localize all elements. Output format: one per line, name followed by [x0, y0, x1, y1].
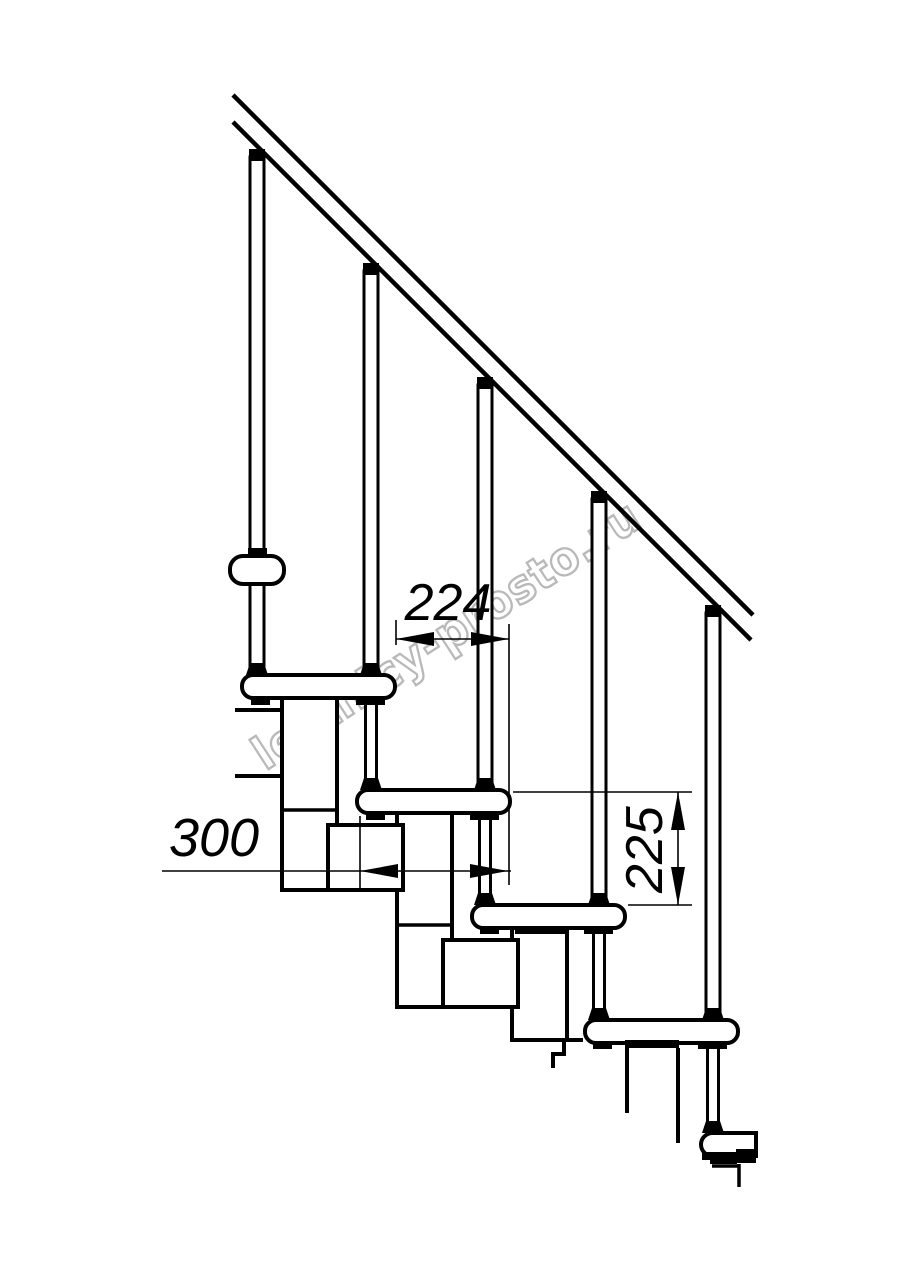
rail-connector: [705, 605, 721, 617]
tread-fitting: [251, 697, 270, 705]
tread-3: [472, 905, 625, 928]
tread-fitting: [356, 697, 385, 705]
tread-fitting: [698, 1041, 727, 1049]
tread-fitting: [470, 812, 499, 820]
rail-connector: [591, 491, 607, 503]
tread-fitting: [625, 1040, 679, 1048]
tread-fitting: [515, 926, 567, 934]
baluster-5: [706, 613, 720, 1020]
tread-fitting: [480, 926, 499, 934]
baluster-3-lower: [480, 813, 491, 905]
baluster-2-lower: [366, 698, 377, 790]
dimension-label-rise: 225: [616, 805, 674, 894]
baluster-4: [592, 499, 606, 905]
dimension-label-run: 224: [404, 574, 492, 632]
module-box-2: [443, 940, 518, 1007]
tread-fitting: [593, 1041, 612, 1049]
tread-fitting: [584, 926, 613, 934]
rail-connector: [363, 263, 379, 275]
module-box-1: [328, 825, 403, 890]
staircase-drawing-page: lestnicy-prosto.ru: [0, 0, 914, 1280]
collar: [230, 556, 284, 584]
tread-4: [585, 1020, 738, 1043]
tread-1: [242, 675, 395, 698]
dimension-label-tread: 300: [169, 808, 259, 868]
baluster-5-lower: [708, 1042, 719, 1133]
baluster-4-lower: [594, 928, 605, 1020]
baluster-2: [364, 271, 378, 675]
module-tube-3: [512, 928, 567, 1040]
baluster-collar: [230, 548, 284, 584]
rail-connector: [249, 149, 265, 161]
tread-2: [357, 790, 510, 813]
baluster-1: [250, 157, 264, 675]
module-outline-under-tread-4: [553, 1040, 583, 1068]
tread-fitting: [710, 1152, 737, 1164]
tread-fitting: [366, 812, 385, 820]
tread-fitting: [736, 1149, 756, 1163]
staircase-technical-drawing: lestnicy-prosto.ru: [0, 0, 914, 1280]
rail-connector: [477, 377, 493, 389]
